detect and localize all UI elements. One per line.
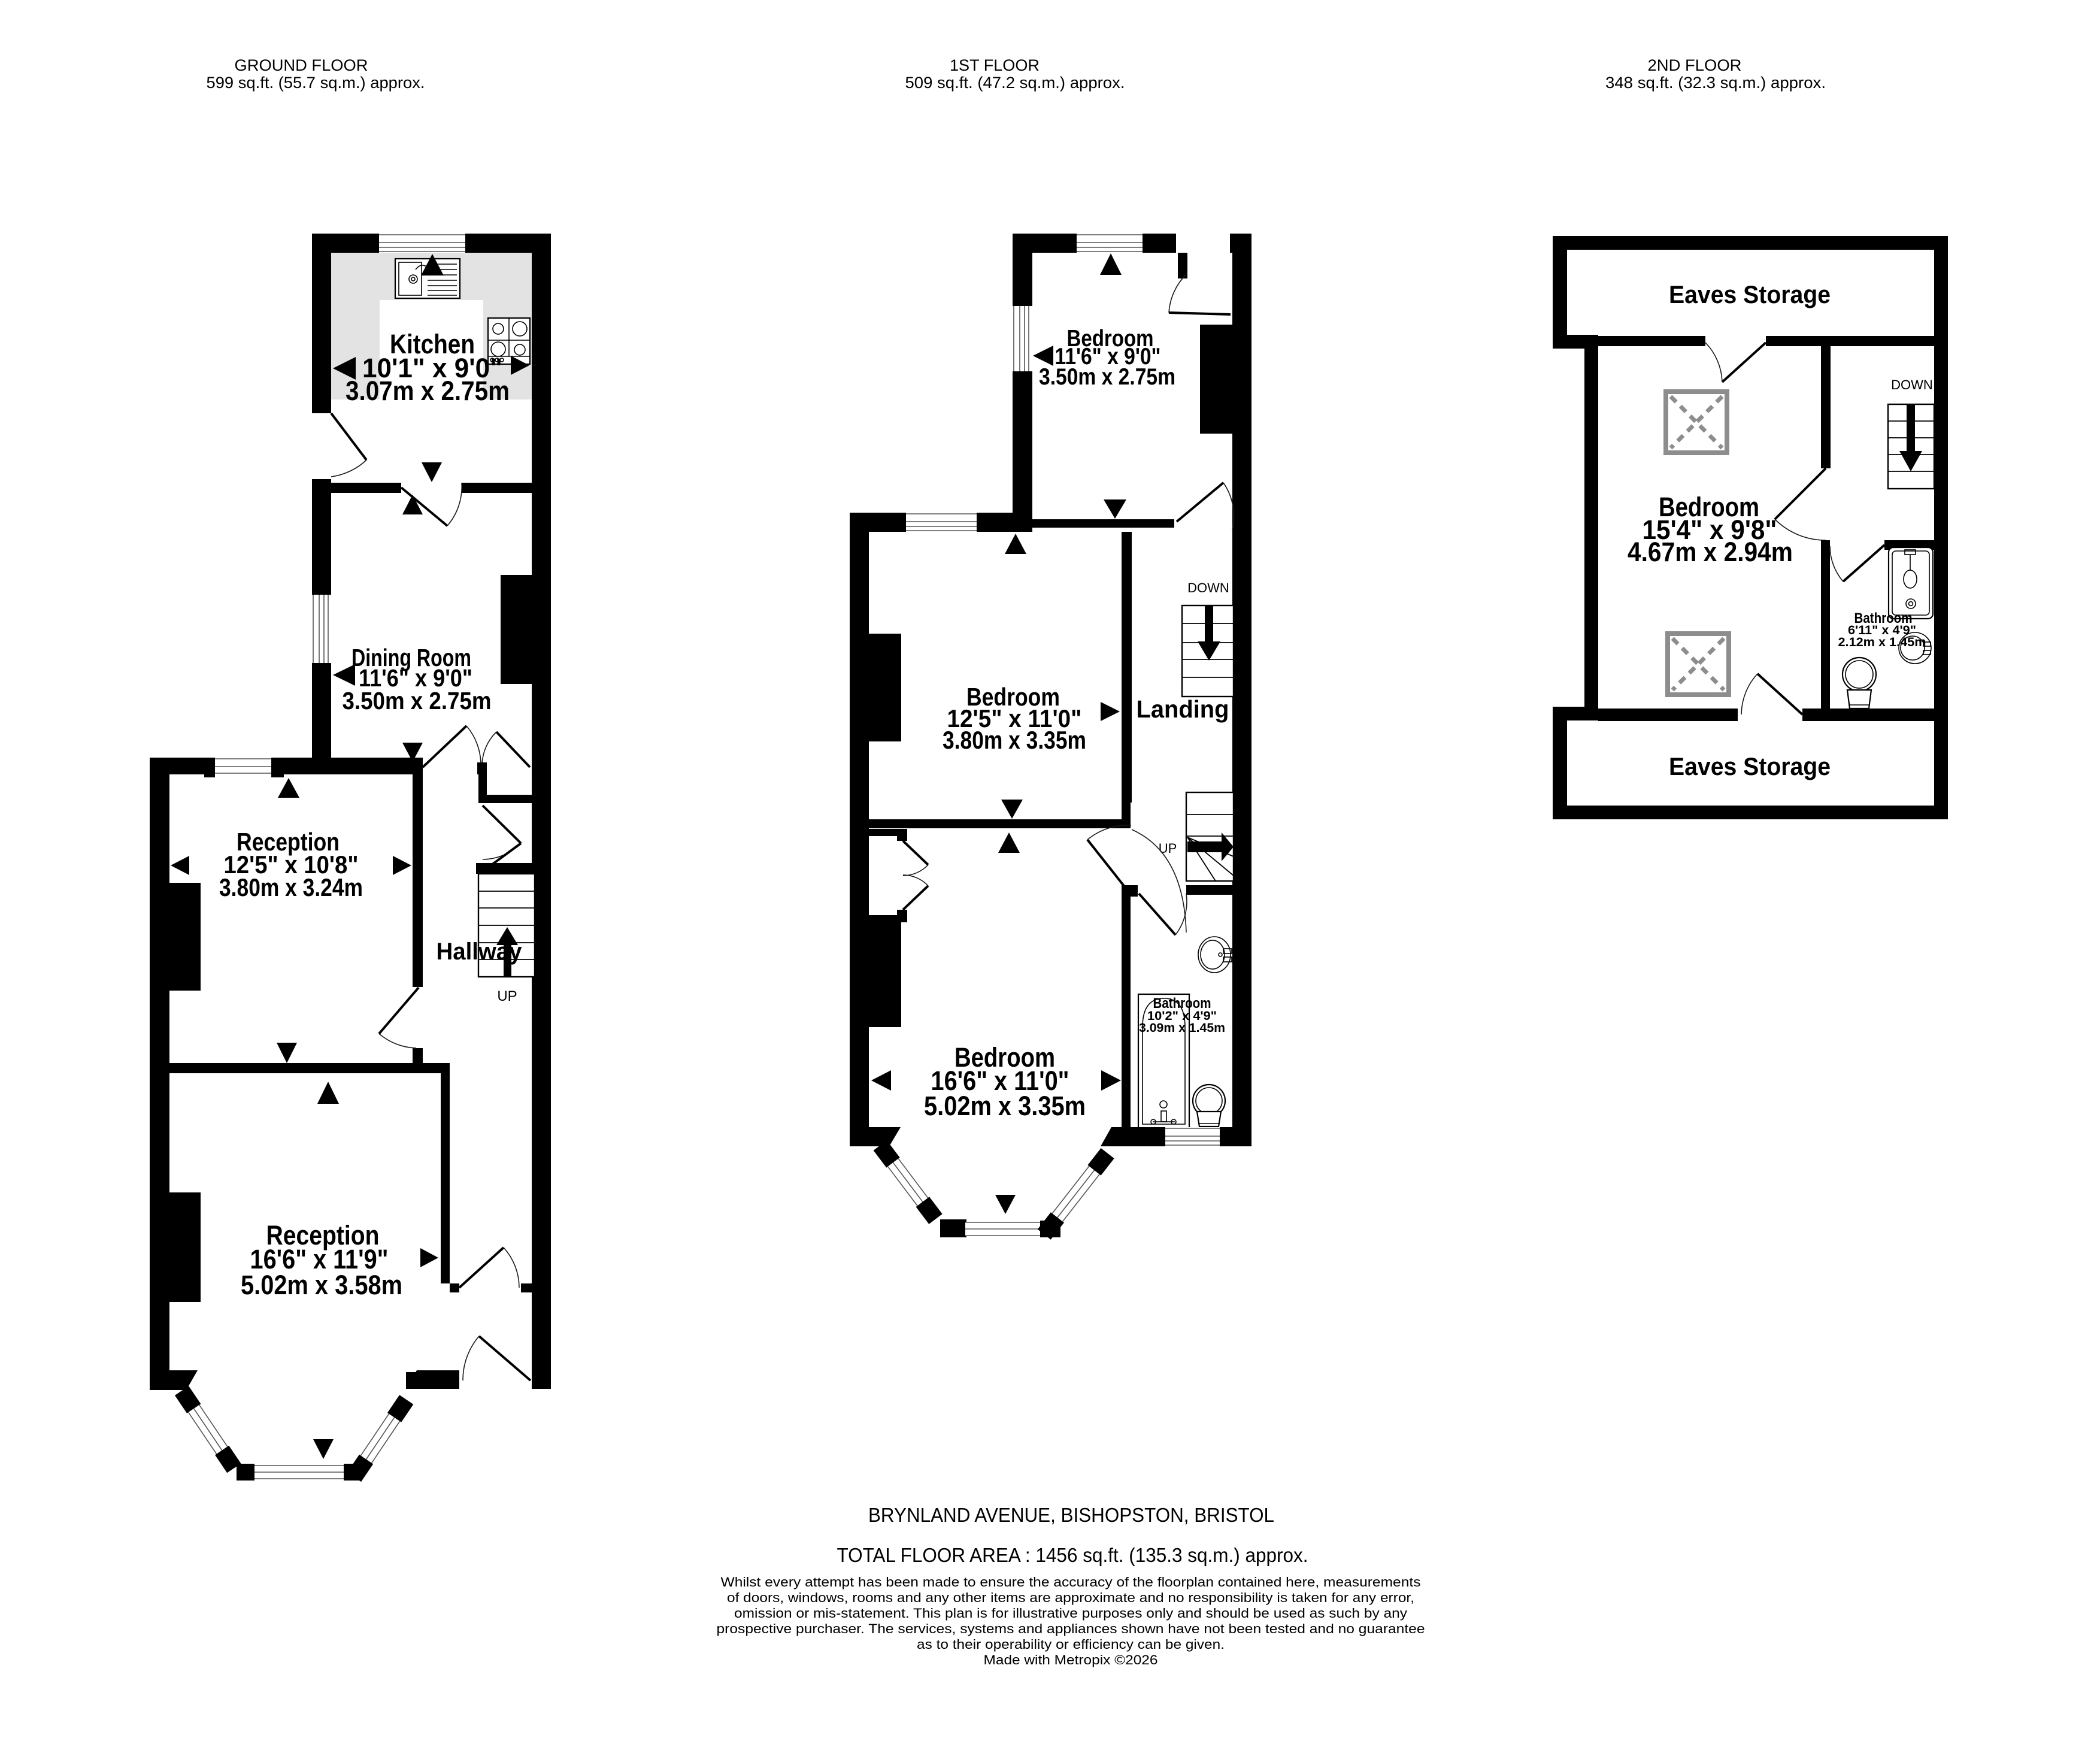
svg-text:UP: UP bbox=[497, 988, 517, 1004]
svg-text:omission or mis-statement. Thi: omission or mis-statement. This plan is … bbox=[734, 1606, 1407, 1621]
svg-text:as to their operability or eff: as to their operability or efficiency ca… bbox=[917, 1637, 1225, 1652]
svg-text:348 sq.ft. (32.3 sq.m.) approx: 348 sq.ft. (32.3 sq.m.) approx. bbox=[1605, 74, 1826, 92]
svg-text:DOWN: DOWN bbox=[1187, 580, 1229, 595]
svg-text:TOTAL FLOOR AREA : 1456 sq.ft.: TOTAL FLOOR AREA : 1456 sq.ft. (135.3 sq… bbox=[837, 1544, 1308, 1566]
svg-text:Hallway: Hallway bbox=[437, 938, 523, 965]
svg-text:of doors, windows, rooms and a: of doors, windows, rooms and any other i… bbox=[727, 1590, 1414, 1605]
svg-text:3.07m x 2.75m: 3.07m x 2.75m bbox=[346, 376, 510, 406]
svg-text:3.50m x 2.75m: 3.50m x 2.75m bbox=[1039, 364, 1175, 390]
svg-text:Eaves Storage: Eaves Storage bbox=[1669, 280, 1831, 308]
svg-text:3.09m x 1.45m: 3.09m x 1.45m bbox=[1139, 1021, 1225, 1035]
svg-text:UP: UP bbox=[1159, 841, 1177, 856]
svg-text:BRYNLAND AVENUE, BISHOPSTON, B: BRYNLAND AVENUE, BISHOPSTON, BRISTOL bbox=[868, 1504, 1274, 1526]
svg-text:DOWN: DOWN bbox=[1891, 377, 1933, 392]
svg-text:5.02m x 3.58m: 5.02m x 3.58m bbox=[241, 1270, 402, 1300]
svg-text:Made with Metropix ©2026: Made with Metropix ©2026 bbox=[984, 1652, 1158, 1667]
svg-text:Landing: Landing bbox=[1137, 695, 1229, 723]
svg-text:2.12m x 1.45m: 2.12m x 1.45m bbox=[1838, 635, 1926, 649]
svg-text:3.80m x 3.35m: 3.80m x 3.35m bbox=[943, 726, 1086, 754]
svg-text:1ST FLOOR: 1ST FLOOR bbox=[950, 56, 1040, 74]
svg-text:Eaves Storage: Eaves Storage bbox=[1669, 752, 1831, 780]
svg-text:2ND FLOOR: 2ND FLOOR bbox=[1648, 56, 1742, 74]
svg-text:GROUND FLOOR: GROUND FLOOR bbox=[235, 56, 368, 74]
svg-text:3.50m x 2.75m: 3.50m x 2.75m bbox=[343, 687, 492, 714]
svg-text:5.02m x 3.35m: 5.02m x 3.35m bbox=[924, 1091, 1086, 1121]
svg-text:599 sq.ft. (55.7 sq.m.) approx: 599 sq.ft. (55.7 sq.m.) approx. bbox=[207, 74, 425, 92]
svg-text:509 sq.ft. (47.2 sq.m.) approx: 509 sq.ft. (47.2 sq.m.) approx. bbox=[905, 74, 1125, 92]
svg-text:prospective purchaser. The ser: prospective purchaser. The services, sys… bbox=[717, 1621, 1425, 1636]
svg-text:3.80m x 3.24m: 3.80m x 3.24m bbox=[219, 873, 363, 901]
svg-text:Whilst every attempt has been: Whilst every attempt has been made to en… bbox=[721, 1575, 1421, 1590]
svg-text:4.67m x 2.94m: 4.67m x 2.94m bbox=[1628, 537, 1793, 567]
